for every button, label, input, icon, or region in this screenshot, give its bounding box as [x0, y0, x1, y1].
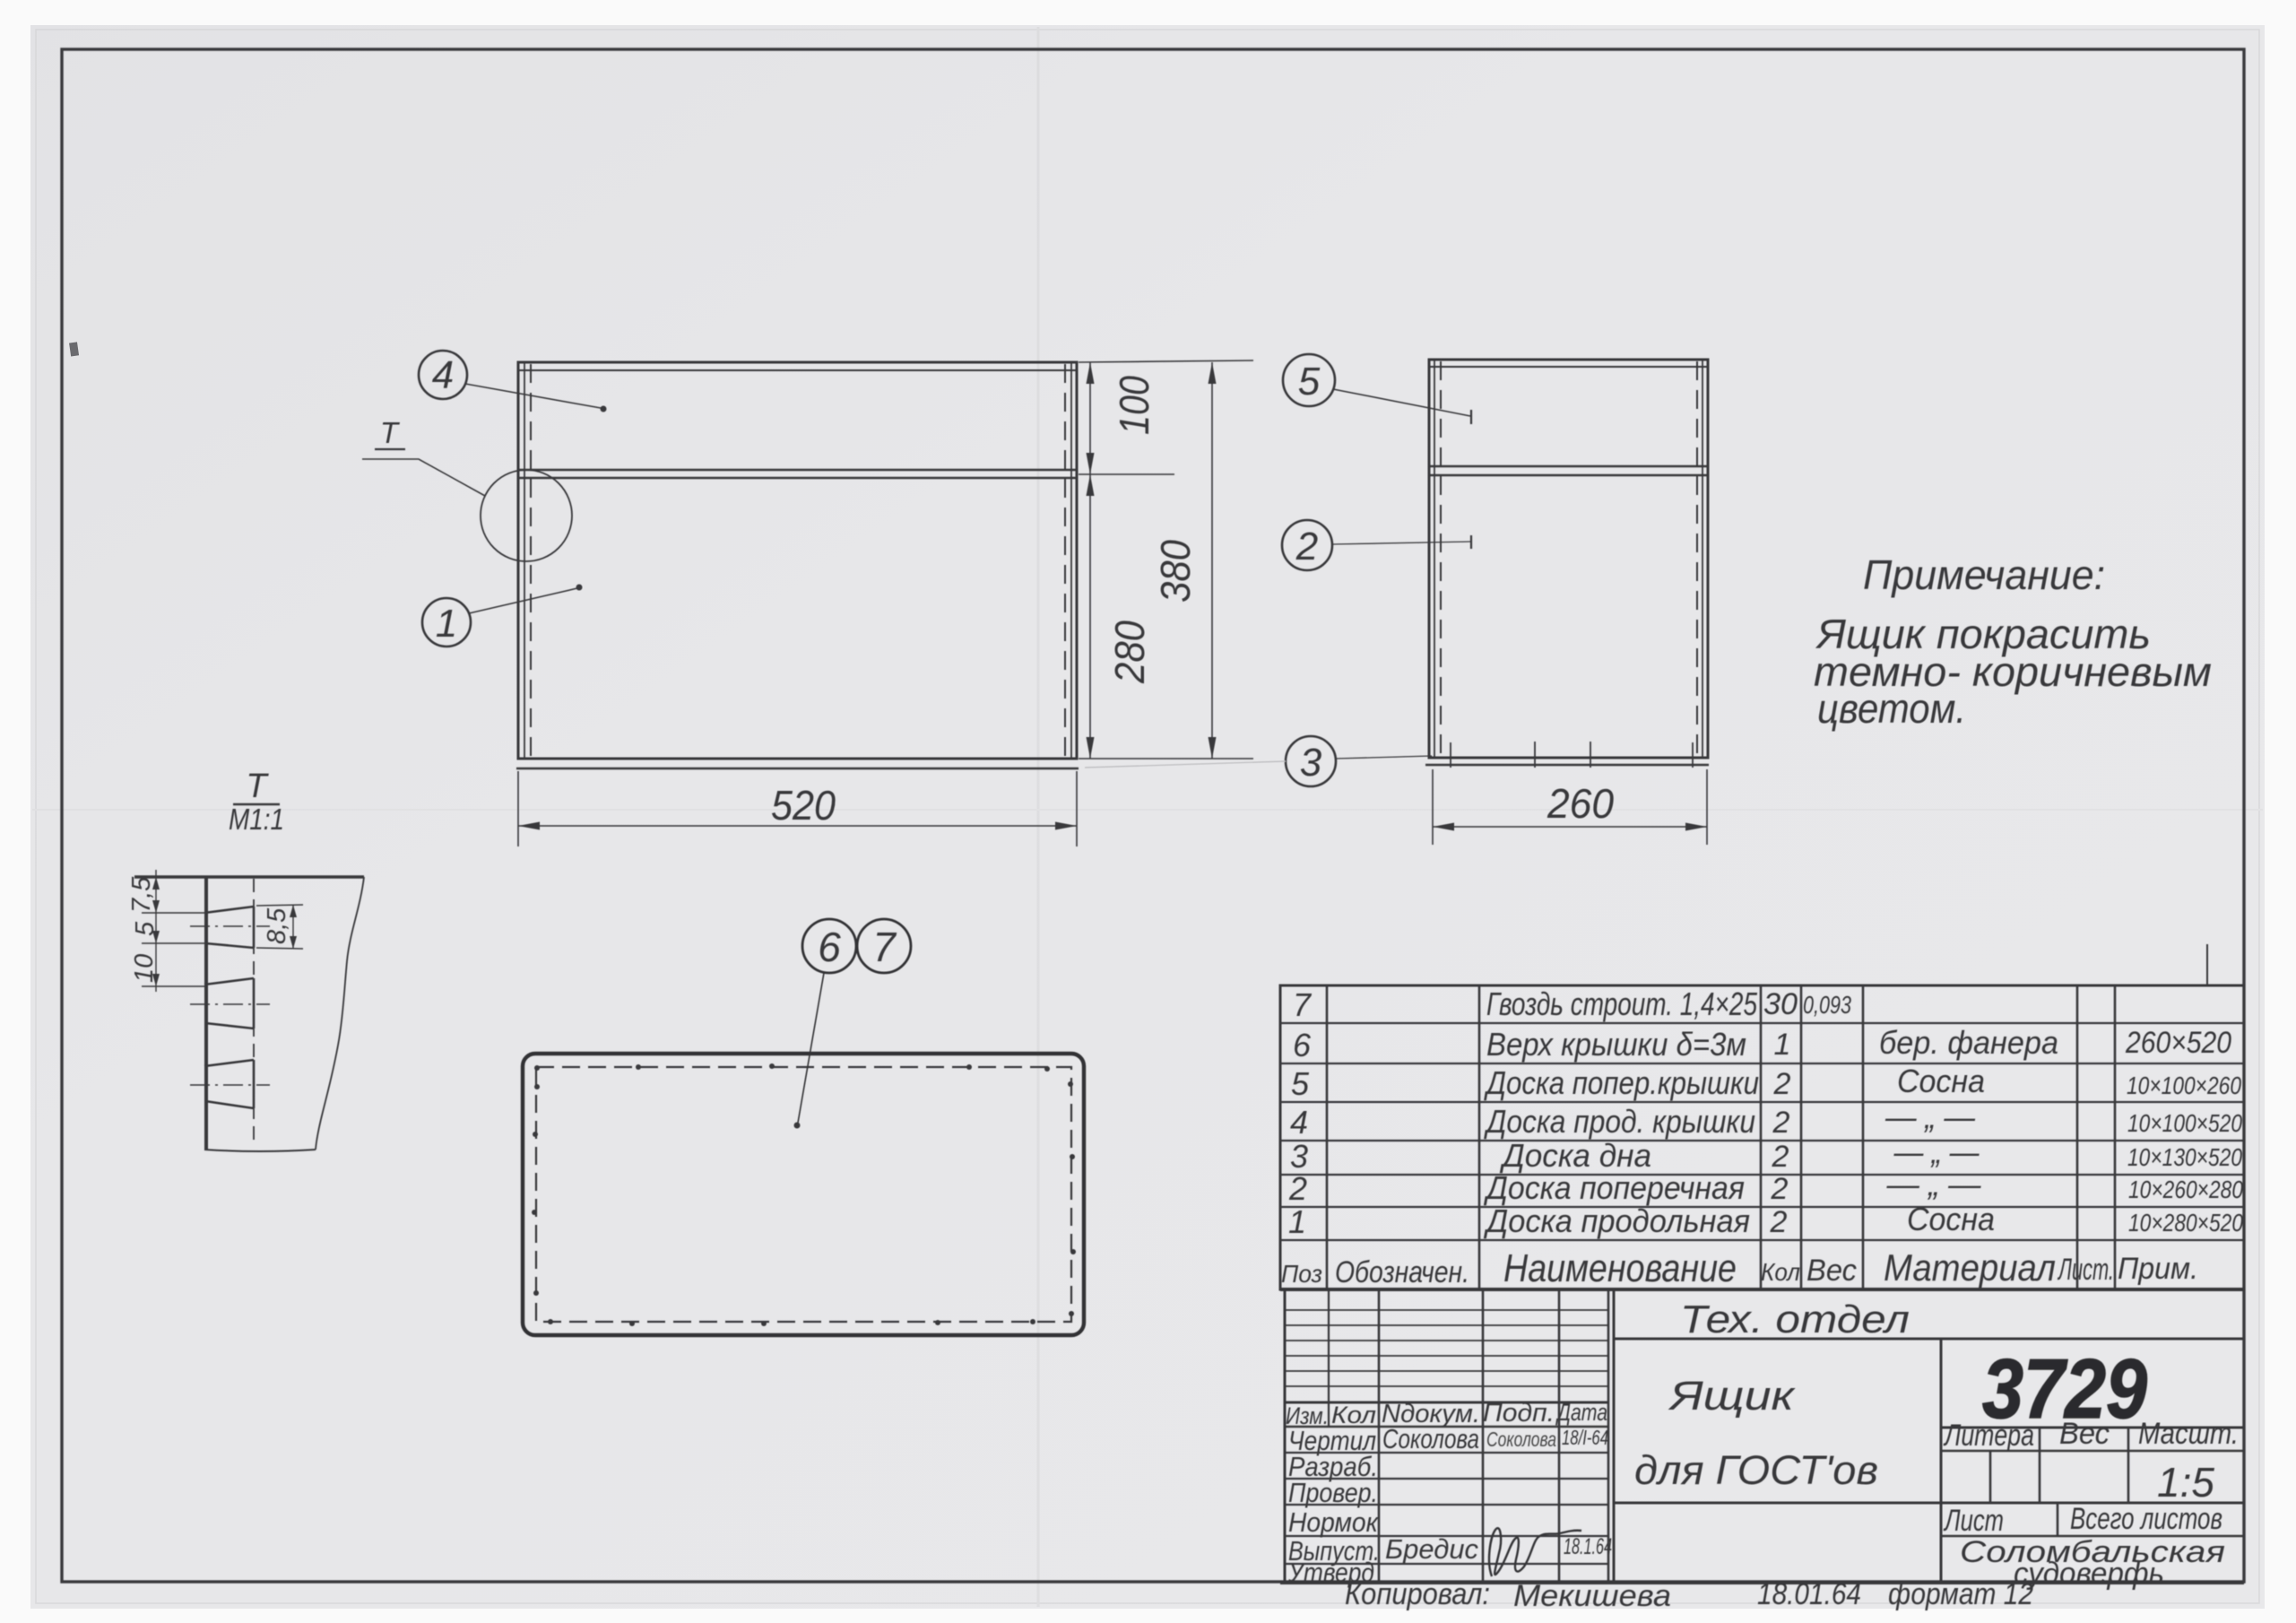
- svg-text:Копировал:: Копировал:: [1345, 1577, 1490, 1611]
- svg-text:Подп.: Подп.: [1483, 1399, 1555, 1428]
- svg-text:5: 5: [131, 921, 160, 936]
- svg-text:Кол: Кол: [1761, 1258, 1800, 1286]
- svg-text:1:5: 1:5: [2157, 1459, 2214, 1506]
- svg-text:2: 2: [1773, 1067, 1791, 1101]
- svg-text:5: 5: [1291, 1065, 1310, 1102]
- svg-text:2: 2: [1772, 1106, 1790, 1140]
- svg-text:бер. фанера: бер. фанера: [1879, 1024, 2058, 1061]
- svg-text:Материал: Материал: [1884, 1246, 2056, 1289]
- svg-text:7: 7: [1293, 986, 1313, 1023]
- svg-text:Верх крышки δ=3м: Верх крышки δ=3м: [1486, 1026, 1746, 1063]
- svg-text:Вес: Вес: [1806, 1254, 1857, 1288]
- svg-text:5: 5: [1298, 360, 1321, 404]
- svg-text:Лист.: Лист.: [2058, 1253, 2114, 1287]
- svg-text:Поз: Поз: [1281, 1260, 1322, 1288]
- svg-text:18/I-64: 18/I-64: [1562, 1426, 1608, 1449]
- svg-text:Доска поперечная: Доска поперечная: [1483, 1169, 1745, 1206]
- svg-text:Обозначен.: Обозначен.: [1335, 1255, 1469, 1289]
- svg-text:T: T: [246, 768, 269, 805]
- svg-text:1: 1: [1288, 1203, 1306, 1240]
- svg-text:T: T: [380, 416, 401, 449]
- svg-text:формат 12: формат 12: [1888, 1577, 2033, 1611]
- svg-text:280: 280: [1106, 621, 1153, 684]
- svg-text:Примечание:: Примечание:: [1863, 551, 2105, 598]
- svg-text:2: 2: [1772, 1140, 1789, 1174]
- svg-text:Литера: Литера: [1943, 1419, 2034, 1453]
- svg-text:2: 2: [1771, 1172, 1789, 1206]
- svg-text:10: 10: [130, 954, 159, 983]
- svg-text:Соколова: Соколова: [1382, 1423, 1479, 1454]
- svg-text:Сосна: Сосна: [1897, 1063, 1985, 1099]
- svg-text:6: 6: [1293, 1027, 1312, 1063]
- svg-text:4: 4: [432, 353, 454, 397]
- svg-text:Прим.: Прим.: [2118, 1252, 2198, 1286]
- svg-text:2: 2: [1770, 1205, 1788, 1239]
- svg-text:10×100×260: 10×100×260: [2127, 1072, 2241, 1099]
- svg-text:Масшт.: Масшт.: [2138, 1417, 2239, 1451]
- svg-text:— „ —: — „ —: [1885, 1166, 1981, 1202]
- svg-text:Доска прод. крышки: Доска прод. крышки: [1483, 1103, 1755, 1140]
- svg-text:— „ —: — „ —: [1893, 1133, 1980, 1170]
- svg-text:судоверфь: судоверфь: [2014, 1557, 2164, 1591]
- svg-text:380: 380: [1152, 540, 1199, 603]
- svg-text:— „ —: — „ —: [1884, 1098, 1976, 1135]
- svg-text:Нормок: Нормок: [1288, 1506, 1379, 1538]
- svg-text:Доска продольная: Доска продольная: [1483, 1202, 1750, 1239]
- svg-text:10×130×520: 10×130×520: [2127, 1143, 2242, 1171]
- svg-text:8,5: 8,5: [263, 907, 291, 944]
- svg-text:10×280×520: 10×280×520: [2128, 1209, 2243, 1237]
- svg-text:Дата: Дата: [1555, 1399, 1607, 1426]
- svg-text:3: 3: [1300, 741, 1322, 785]
- svg-text:Гвоздь строит. 1,4×25: Гвоздь строит. 1,4×25: [1486, 985, 1758, 1022]
- svg-text:18.1.64: 18.1.64: [1564, 1534, 1612, 1559]
- svg-text:М1:1: М1:1: [229, 803, 284, 836]
- svg-text:2: 2: [1288, 1170, 1307, 1207]
- svg-text:18.01.64: 18.01.64: [1757, 1577, 1861, 1611]
- svg-text:Бредис: Бредис: [1385, 1533, 1478, 1565]
- svg-text:1: 1: [436, 602, 457, 646]
- svg-text:6: 6: [818, 924, 841, 970]
- svg-text:Вес: Вес: [2059, 1417, 2110, 1451]
- svg-text:Провер.: Провер.: [1288, 1477, 1378, 1508]
- svg-text:Доска дна: Доска дна: [1499, 1137, 1651, 1174]
- svg-text:520: 520: [771, 782, 836, 829]
- svg-text:7,5: 7,5: [127, 876, 156, 913]
- svg-text:Доска попер.крышки: Доска попер.крышки: [1484, 1064, 1759, 1101]
- svg-text:1: 1: [1774, 1028, 1791, 1062]
- svg-text:для ГОСТ'ов: для ГОСТ'ов: [1634, 1447, 1878, 1493]
- svg-text:100: 100: [1111, 376, 1157, 435]
- svg-text:260: 260: [1547, 780, 1614, 827]
- svg-text:Сосна: Сосна: [1907, 1201, 1995, 1237]
- svg-text:Ящик: Ящик: [1668, 1373, 1796, 1419]
- svg-text:0,093: 0,093: [1803, 991, 1851, 1019]
- svg-text:Всего листов: Всего листов: [2070, 1502, 2222, 1536]
- svg-text:2: 2: [1295, 525, 1318, 568]
- svg-text:4: 4: [1290, 1104, 1308, 1141]
- svg-text:30: 30: [1763, 987, 1798, 1021]
- svg-text:10×260×280: 10×260×280: [2128, 1176, 2243, 1203]
- svg-text:10×100×520: 10×100×520: [2127, 1109, 2242, 1137]
- svg-text:Наименование: Наименование: [1503, 1246, 1737, 1290]
- svg-text:Лист: Лист: [1943, 1504, 2004, 1538]
- svg-text:Тех. отдел: Тех. отдел: [1680, 1298, 1910, 1341]
- svg-text:Соколова: Соколова: [1486, 1428, 1556, 1451]
- svg-text:260×520: 260×520: [2125, 1026, 2231, 1060]
- svg-text:цветом.: цветом.: [1817, 685, 1966, 732]
- svg-text:3: 3: [1290, 1138, 1308, 1175]
- svg-text:Мекишева: Мекишева: [1513, 1579, 1671, 1613]
- svg-text:7: 7: [872, 924, 897, 970]
